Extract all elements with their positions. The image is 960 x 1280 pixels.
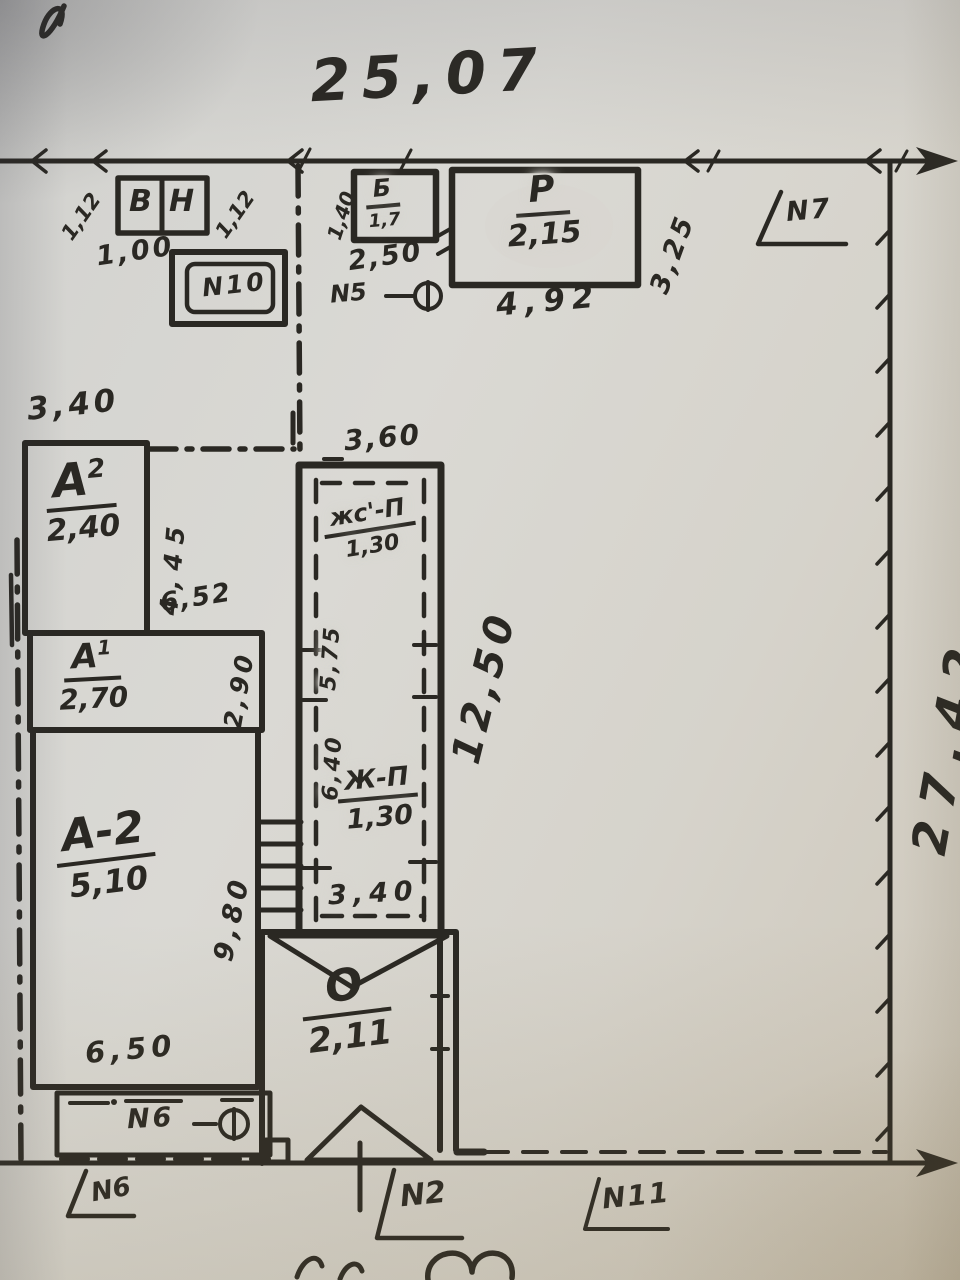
right-boundary-line <box>877 161 890 1163</box>
top-boundary-dimension: 25,07 <box>309 40 550 110</box>
left-boundary-dashdot <box>11 540 21 1160</box>
survey-mark-n5-icon <box>386 282 441 310</box>
building-a1-sup: 1 <box>97 635 112 660</box>
building-p-area: 2,15 <box>506 213 582 252</box>
building-a2-label: А-2 5,10 <box>51 804 160 903</box>
dim-4-92: 4,92 <box>495 282 602 322</box>
building-a2-upper-label: А2 2,40 <box>40 453 121 547</box>
mark-n2-label: N2 <box>399 1178 448 1213</box>
mark-n5-label: N5 <box>329 279 368 306</box>
building-a1-name: А <box>70 636 98 677</box>
building-zh-label: Ж-П 1,30 <box>335 763 421 835</box>
building-a2-upper-area: 2,40 <box>45 507 122 547</box>
mark-n7-label: N7 <box>785 195 833 226</box>
dim-6-50: 6,50 <box>84 1031 178 1068</box>
mark-n10-label: N10 <box>201 269 268 301</box>
building-p-name: Р <box>513 170 570 218</box>
photographed-survey-plan: 25,07 27,42 В Н 1,12 1,12 1,00 N10 1,40 … <box>0 0 960 1280</box>
dim-5-75: 5,75 <box>318 624 345 692</box>
structure-vn-cell2: Н <box>169 187 194 217</box>
building-p-label: Р 2,15 <box>503 170 582 253</box>
cut-off-handwriting-bottom <box>297 1253 512 1280</box>
building-a2-upper-sup: 2 <box>86 454 107 485</box>
building-zh-area: 1,30 <box>345 797 414 834</box>
building-a1-label: А1 2,70 <box>56 636 129 715</box>
building-o-label: О 2,11 <box>297 959 397 1059</box>
building-a2-upper-name: А <box>50 451 90 508</box>
mark-n11-label: N11 <box>601 1179 672 1214</box>
mark-n6-label: N6 <box>89 1174 133 1207</box>
handwriting-flourish-top-left <box>42 6 64 36</box>
building-b-area: 1,7 <box>368 207 402 232</box>
structure-vn-cell1: В <box>129 187 152 217</box>
building-b-name: Б <box>364 175 401 210</box>
dim-3-40-bottom: 3,40 <box>327 878 419 910</box>
porch-canopy-bottom <box>307 1107 431 1160</box>
dim-3-60: 3,60 <box>343 421 422 456</box>
building-a1-area: 2,70 <box>58 680 129 716</box>
mark-n6-strip-label: N6 <box>126 1104 175 1133</box>
staircase <box>258 822 301 910</box>
building-b-label: Б 1,7 <box>364 175 403 232</box>
